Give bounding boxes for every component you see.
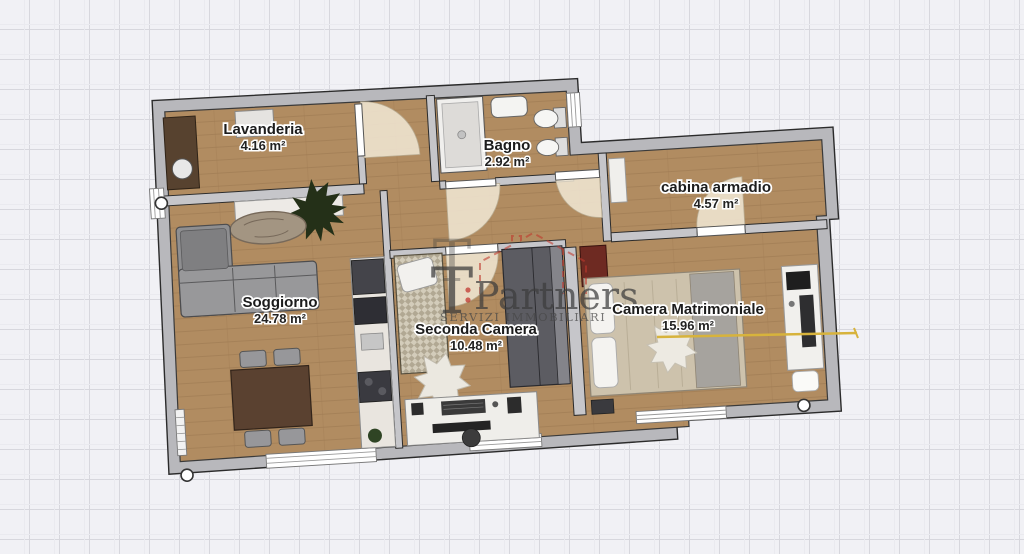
floorplan-viewport: T T Partners SERVIZI IMMOBILIARI Lavande… (0, 0, 1024, 554)
room-area: 24.78 m² (254, 311, 307, 326)
room-area: 4.16 m² (241, 138, 286, 153)
room-name: cabina armadio (661, 179, 771, 196)
handle-dot[interactable] (155, 197, 168, 210)
label-bagno: Bagno 2.92 m² (484, 137, 531, 169)
handle-dot[interactable] (181, 469, 194, 482)
window-bagno-right (566, 92, 581, 127)
room-name: Lavanderia (223, 121, 303, 138)
room-area: 15.96 m² (662, 318, 715, 333)
room-name: Seconda Camera (415, 321, 537, 338)
floorplan-canvas: T T Partners SERVIZI IMMOBILIARI Lavande… (0, 0, 1024, 554)
logo-colon-dot (465, 297, 470, 302)
logo-colon-dot (465, 287, 470, 292)
wall-bagno-bottom-a (440, 181, 446, 189)
room-name: Camera Matrimoniale (612, 301, 764, 318)
room-area: 4.57 m² (694, 196, 739, 211)
room-name: Bagno (484, 137, 531, 154)
room-area: 10.48 m² (450, 338, 503, 353)
room-name: Soggiorno (243, 294, 318, 311)
room-area: 2.92 m² (485, 154, 530, 169)
room-soggiorno[interactable] (171, 193, 396, 459)
